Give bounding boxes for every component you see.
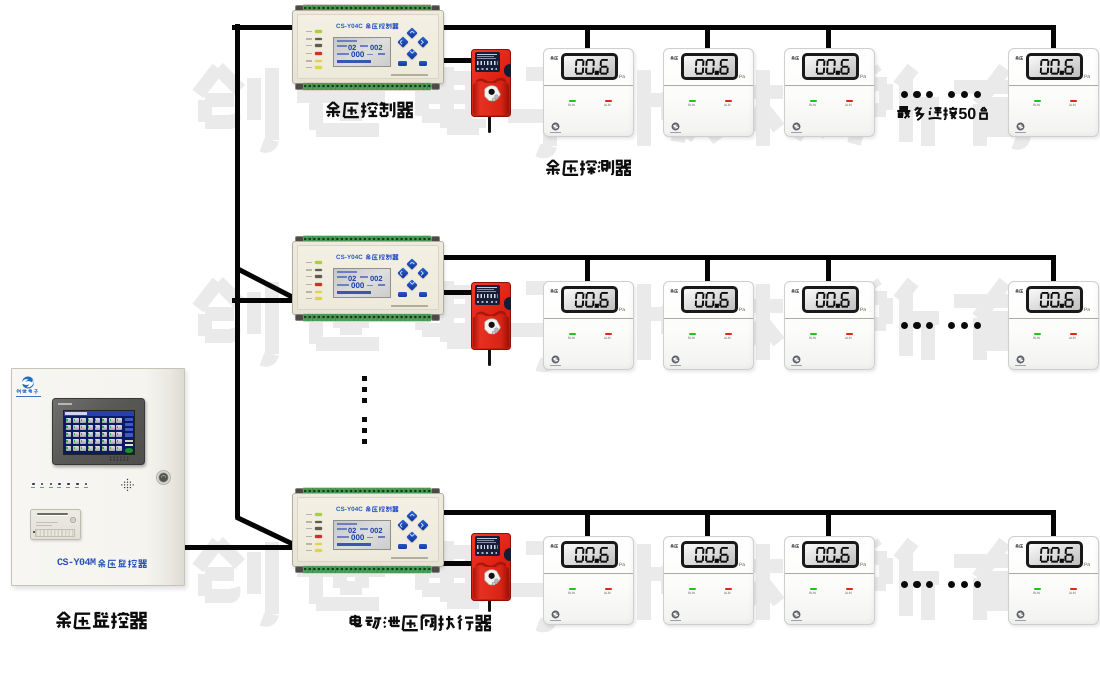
svg-text:50: 50 bbox=[958, 105, 976, 123]
